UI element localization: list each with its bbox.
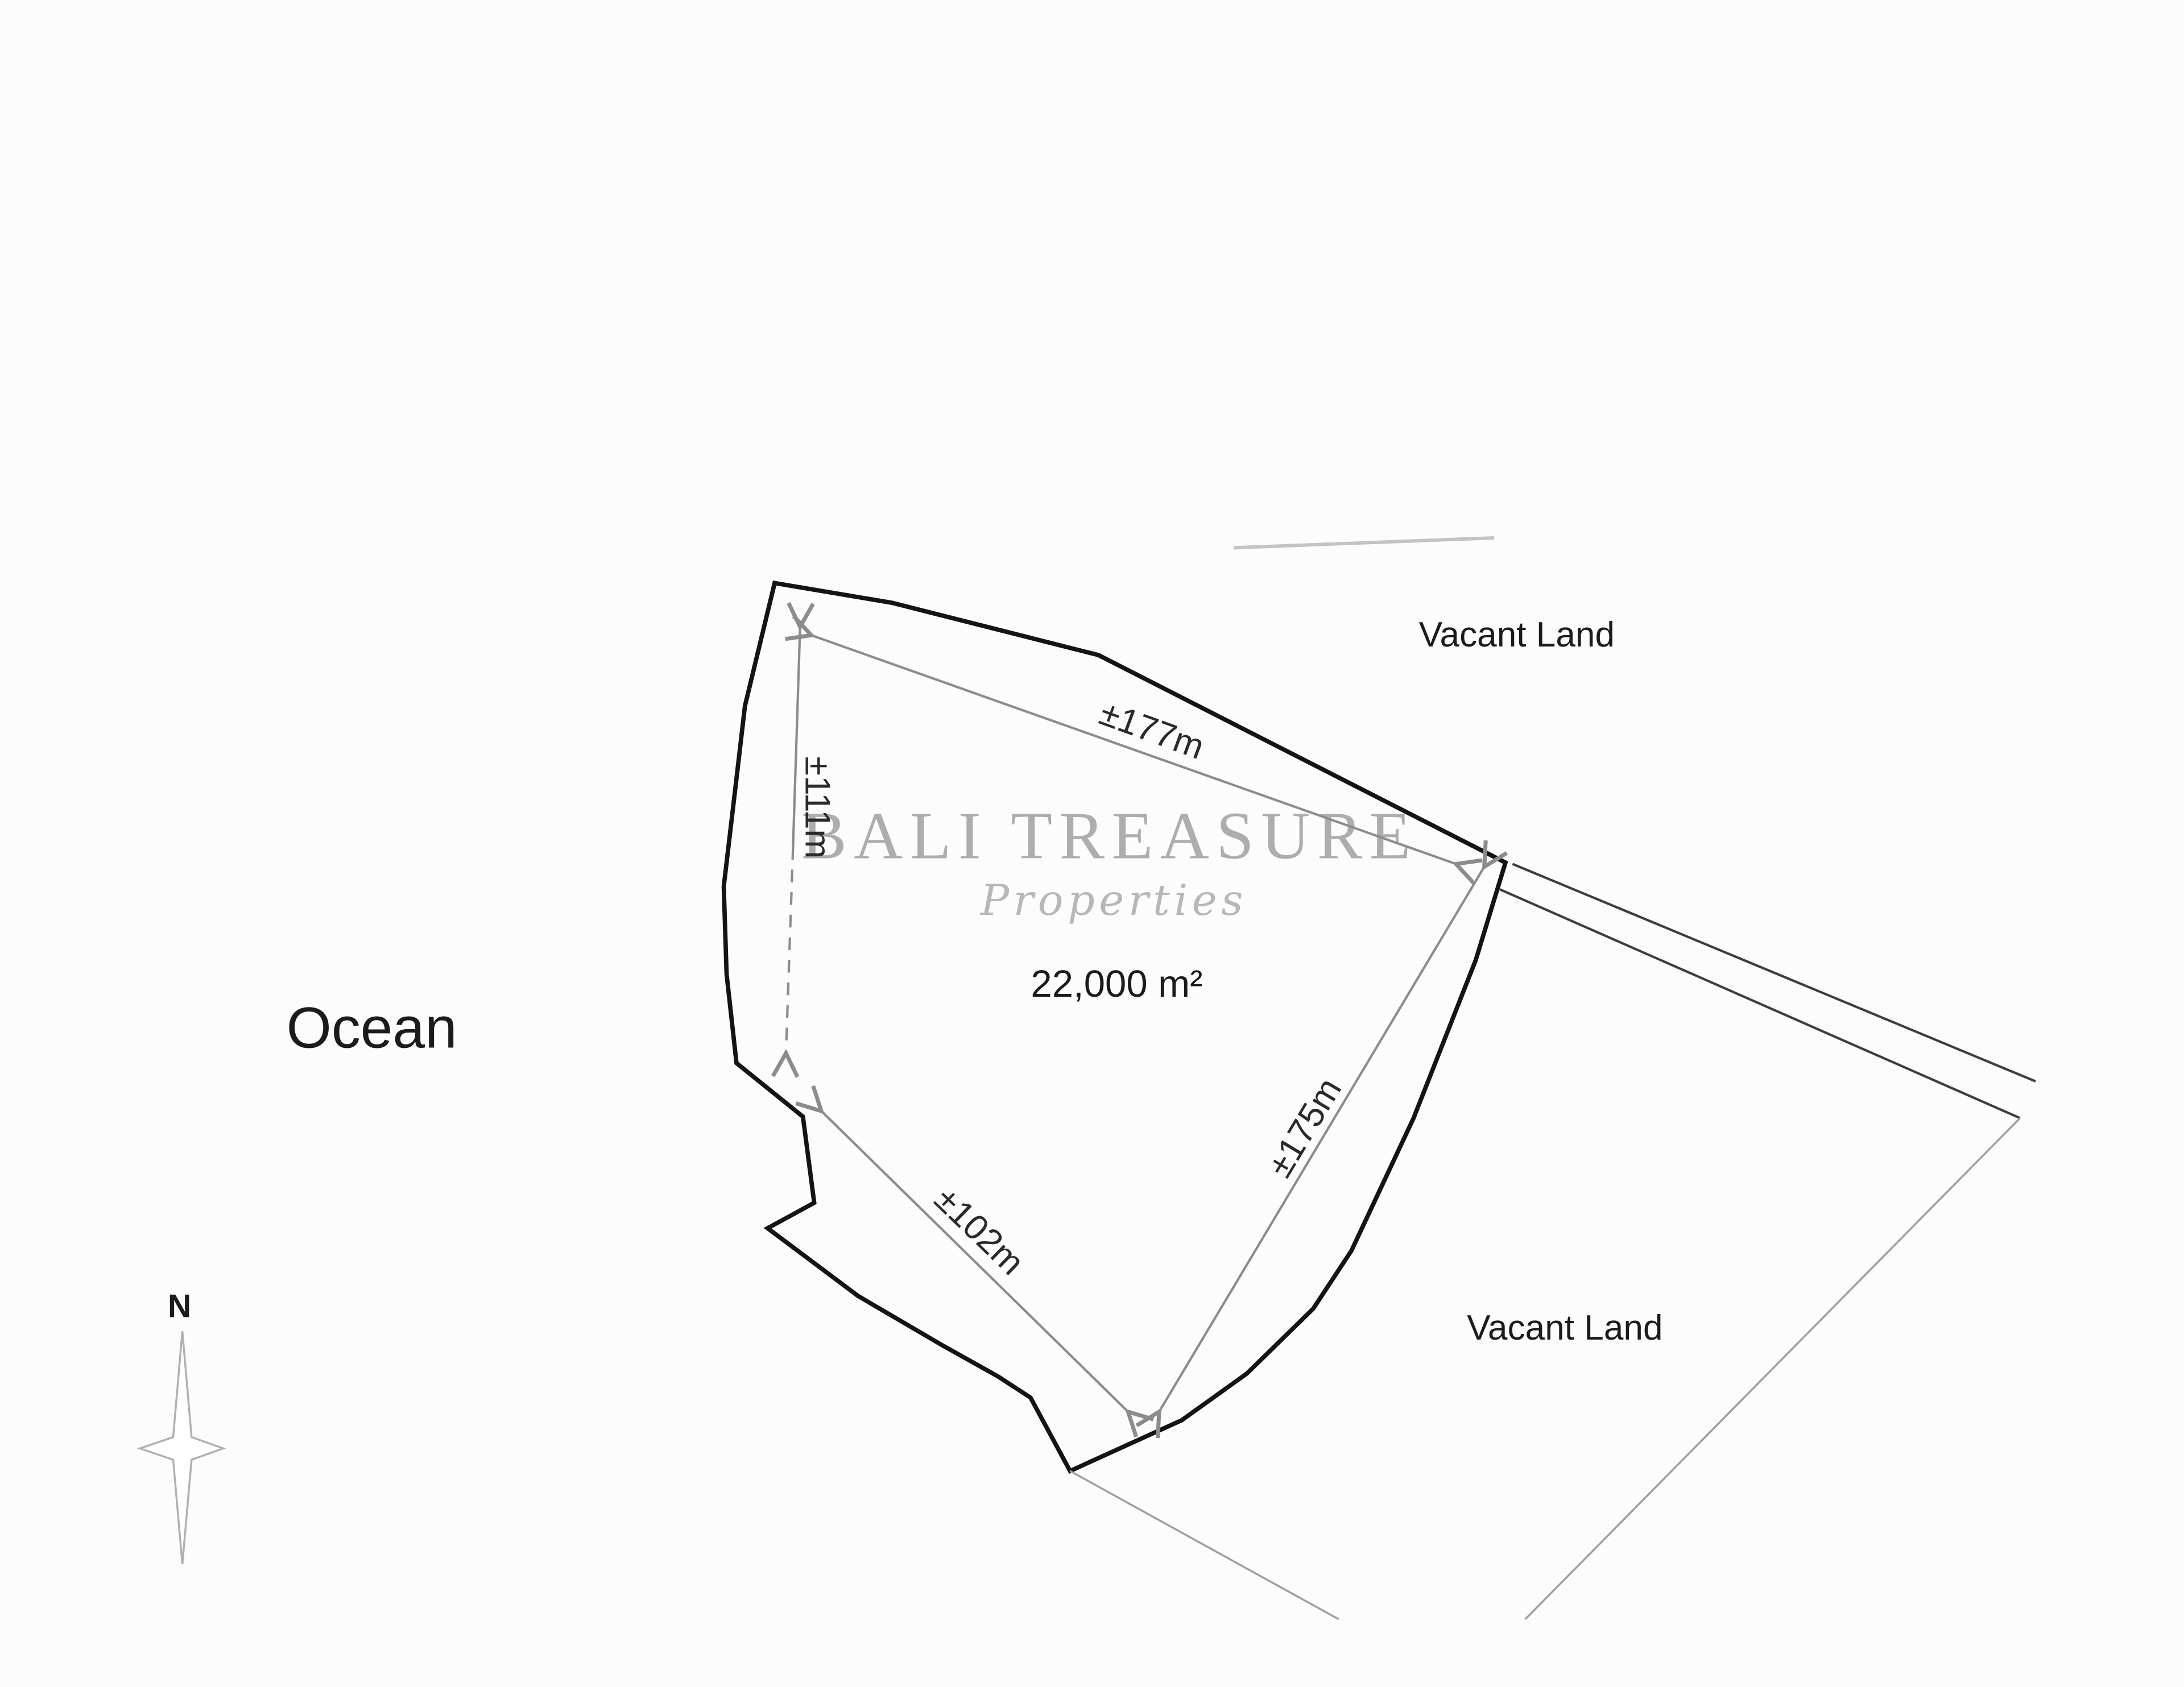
survey-drawing: BALI TREASURE Properties ±177m ±111m ±17… [0, 0, 2184, 1687]
vacant-land-label-top: Vacant Land [1419, 615, 1615, 654]
land-plot-diagram: BALI TREASURE Properties ±177m ±111m ±17… [0, 0, 2184, 1687]
dimension-label-111m: ±111m [798, 756, 837, 859]
area-label: 22,000 m² [1031, 963, 1202, 1005]
parcel-boundary-line-south [1070, 1471, 1338, 1619]
dimension-arrow-111m-dashed [786, 847, 793, 1053]
ocean-label: Ocean [287, 995, 457, 1060]
road-boundary-line-upper [1512, 864, 2036, 1081]
map-edge-line [1234, 538, 1494, 548]
compass-rose-icon [140, 1331, 224, 1564]
parcel-boundary-line-east [1525, 1118, 2020, 1619]
vacant-land-label-bottom: Vacant Land [1467, 1308, 1662, 1348]
road-boundary-line-lower [1500, 889, 2020, 1118]
compass: N [140, 1288, 224, 1564]
watermark-brand-text: BALI TREASURE [801, 798, 1418, 873]
dimension-arrow-102m [821, 1111, 1128, 1412]
dimension-arrow-175m [1159, 867, 1484, 1411]
road-boundary [1500, 864, 2036, 1118]
watermark-sub-text: Properties [979, 876, 1247, 925]
north-label: N [168, 1288, 191, 1325]
